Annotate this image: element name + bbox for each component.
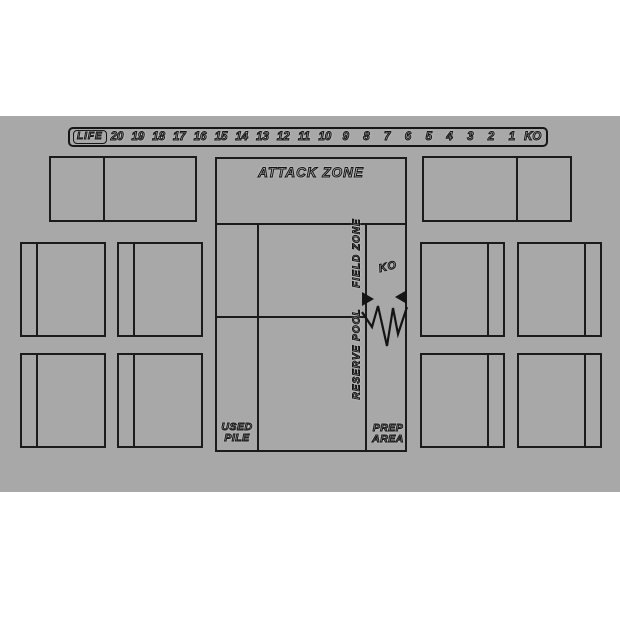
- slot-divider: [36, 244, 38, 335]
- life-value: 14: [231, 131, 252, 143]
- attack-zone-label: ATTACK ZONE: [217, 165, 405, 180]
- life-value: 20: [107, 131, 128, 143]
- reserve-divider: [217, 316, 367, 318]
- life-value: 16: [190, 131, 211, 143]
- card-slot-left-2: [117, 242, 203, 337]
- life-value: 19: [127, 131, 148, 143]
- life-value: 12: [273, 131, 294, 143]
- life-value: 3: [460, 131, 481, 143]
- prep-area-line2: AREA: [372, 434, 404, 445]
- life-track-label: LIFE: [73, 130, 107, 144]
- life-value: 6: [398, 131, 419, 143]
- life-value: 17: [169, 131, 190, 143]
- slot-divider: [133, 244, 135, 335]
- slot-divider: [516, 158, 518, 220]
- life-track-values: 2019181716151413121110987654321KO: [107, 131, 543, 143]
- card-slot-right-4: [517, 353, 602, 448]
- slot-divider: [487, 244, 489, 335]
- life-value: 5: [418, 131, 439, 143]
- slot-divider: [133, 355, 135, 446]
- card-slot-right-2: [517, 242, 602, 337]
- life-value: 7: [377, 131, 398, 143]
- ko-zone-label: KO: [378, 259, 399, 275]
- used-pile-label: USED PILE: [221, 422, 252, 444]
- card-slot-right-1: [420, 242, 505, 337]
- slot-divider: [584, 244, 586, 335]
- card-slot-left-4: [117, 353, 203, 448]
- slot-divider: [36, 355, 38, 446]
- used-pile-divider: [257, 223, 259, 450]
- card-slot-left-3: [20, 353, 106, 448]
- life-value: 18: [148, 131, 169, 143]
- life-value: 2: [481, 131, 502, 143]
- life-value: KO: [522, 131, 543, 143]
- playmat: LIFE 2019181716151413121110987654321KO: [0, 116, 620, 492]
- top-left-double-slot: [49, 156, 197, 222]
- card-slot-left-1: [20, 242, 106, 337]
- top-right-double-slot: [422, 156, 572, 222]
- card-slot-right-3: [420, 353, 505, 448]
- used-pile-line2: PILE: [221, 433, 252, 444]
- life-value: 8: [356, 131, 377, 143]
- life-value: 1: [502, 131, 523, 143]
- life-value: 11: [294, 131, 315, 143]
- slot-divider: [584, 355, 586, 446]
- slot-divider: [487, 355, 489, 446]
- prep-area-label: PREP AREA: [372, 423, 404, 445]
- life-value: 13: [252, 131, 273, 143]
- slot-divider: [103, 158, 105, 220]
- attack-zone-divider: [217, 223, 405, 225]
- burst-divider-icon: [358, 288, 410, 350]
- life-value: 4: [439, 131, 460, 143]
- life-value: 15: [211, 131, 232, 143]
- life-track: LIFE 2019181716151413121110987654321KO: [68, 127, 548, 147]
- life-value: 9: [335, 131, 356, 143]
- playmat-page: LIFE 2019181716151413121110987654321KO: [0, 0, 620, 620]
- field-zone-label: FIELD ZONE: [352, 218, 363, 287]
- life-value: 10: [314, 131, 335, 143]
